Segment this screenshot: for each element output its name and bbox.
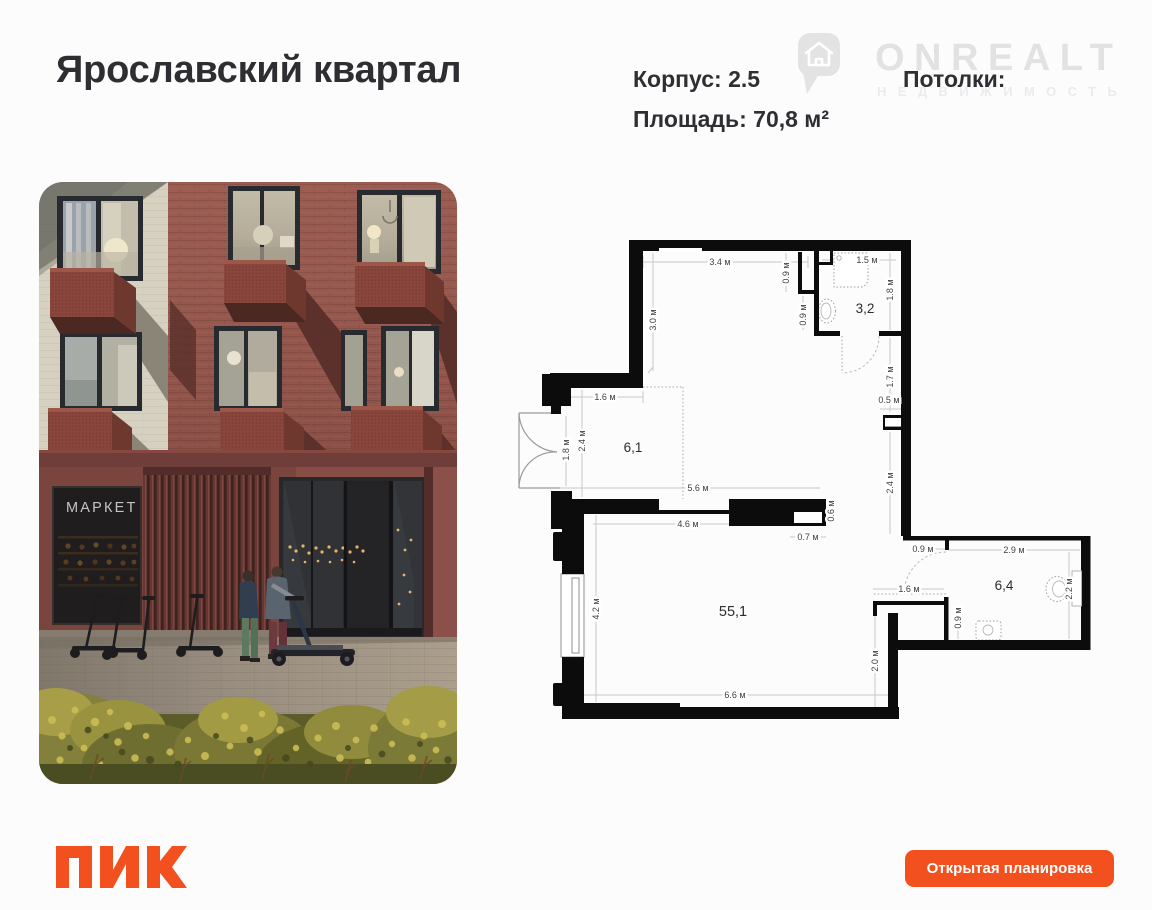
svg-text:1.6 м: 1.6 м xyxy=(898,584,919,594)
svg-text:1.8 м: 1.8 м xyxy=(885,279,895,300)
svg-text:0.7 м: 0.7 м xyxy=(797,532,818,542)
svg-text:6,4: 6,4 xyxy=(995,578,1014,593)
svg-text:0.5 м: 0.5 м xyxy=(878,395,899,405)
svg-text:2.4 м: 2.4 м xyxy=(885,472,895,493)
svg-text:0.9 м: 0.9 м xyxy=(781,262,791,283)
svg-text:3.4 м: 3.4 м xyxy=(709,257,730,267)
svg-text:0.6 м: 0.6 м xyxy=(826,500,836,521)
svg-text:2.2 м: 2.2 м xyxy=(1064,578,1074,599)
svg-text:55,1: 55,1 xyxy=(719,604,747,620)
svg-text:1.6 м: 1.6 м xyxy=(594,392,615,402)
svg-text:2.9 м: 2.9 м xyxy=(1003,545,1024,555)
svg-text:0.9 м: 0.9 м xyxy=(798,304,808,325)
svg-text:1.5 м: 1.5 м xyxy=(856,255,877,265)
svg-text:6.6 м: 6.6 м xyxy=(724,690,745,700)
svg-text:3,2: 3,2 xyxy=(856,301,875,316)
svg-text:4.6 м: 4.6 м xyxy=(677,519,698,529)
svg-text:3.0 м: 3.0 м xyxy=(648,309,658,330)
svg-text:5.6 м: 5.6 м xyxy=(687,483,708,493)
svg-text:1.7 м: 1.7 м xyxy=(885,366,895,387)
svg-text:0.9 м: 0.9 м xyxy=(912,544,933,554)
svg-text:2.4 м: 2.4 м xyxy=(577,430,587,451)
svg-text:2.0 м: 2.0 м xyxy=(870,650,880,671)
svg-text:0.9 м: 0.9 м xyxy=(953,607,963,628)
svg-text:6,1: 6,1 xyxy=(624,440,643,455)
svg-text:1.8 м: 1.8 м xyxy=(561,439,571,460)
svg-text:4.2 м: 4.2 м xyxy=(591,598,601,619)
